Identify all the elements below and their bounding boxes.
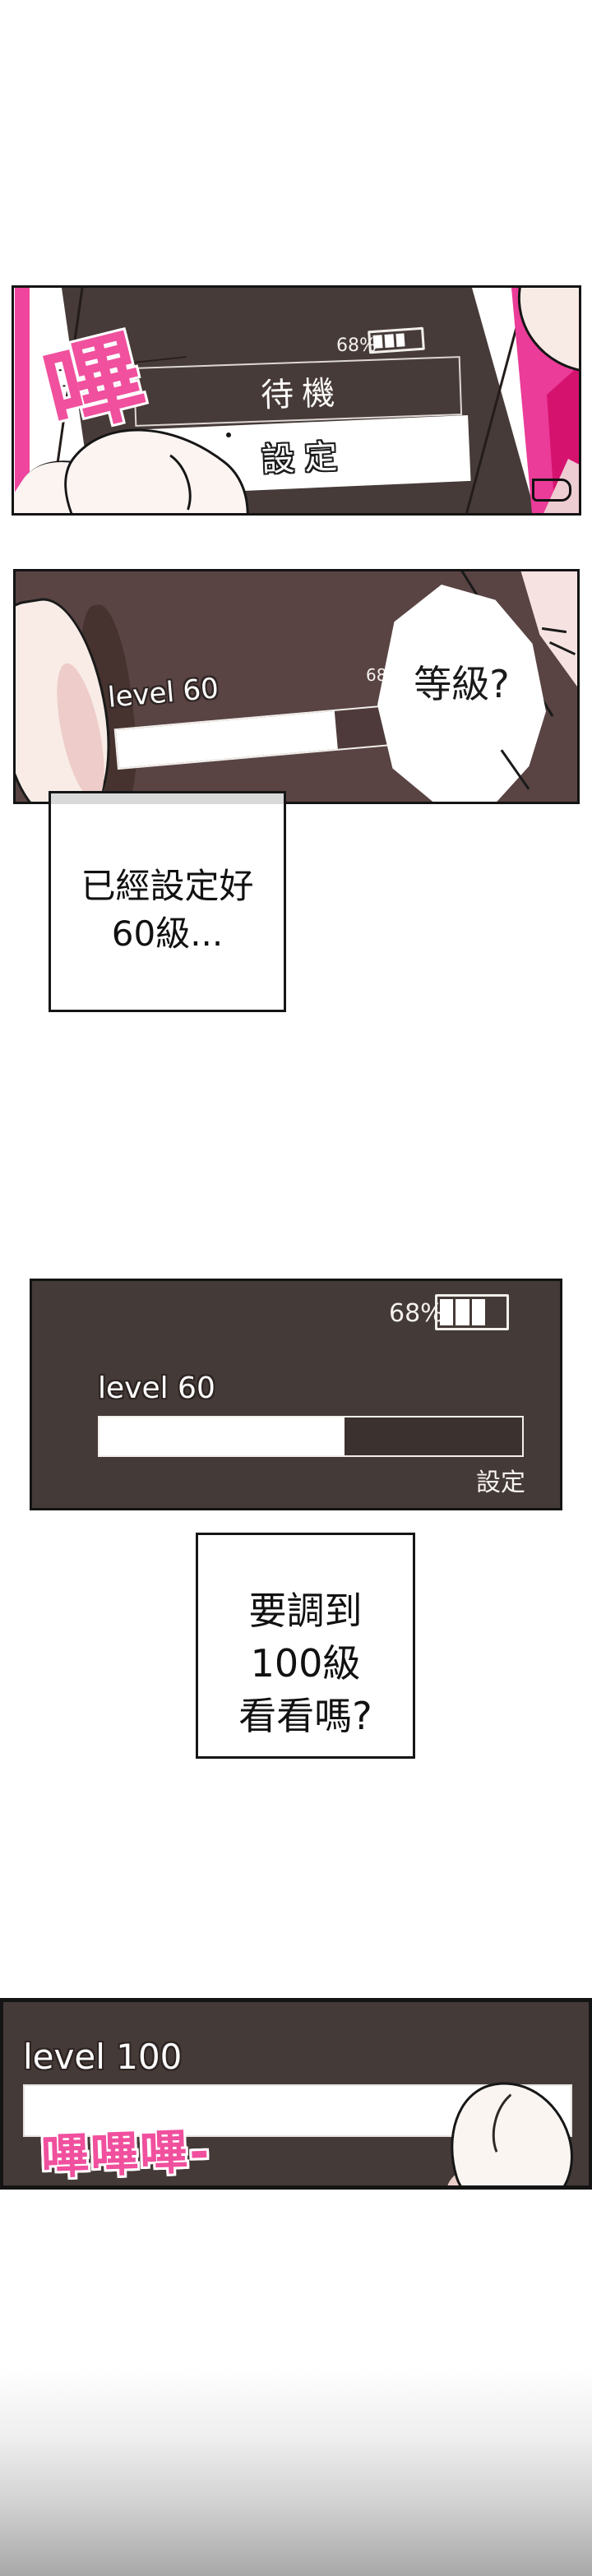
comic-page: 68% 待機 設定 嗶 level 60 [0,0,592,2576]
battery-cell [395,333,405,347]
speech-bubble-text: 等級? [414,654,509,709]
standby-menu-item: 待機 [133,356,462,427]
caption-line: 要調到 [198,1584,413,1637]
phone-corner-hook [532,479,571,502]
caption-overlap-strip [51,793,284,804]
battery-cell [373,335,383,349]
panel-phone-menu: 68% 待機 設定 嗶 [12,285,581,516]
caption-line: 60級... [51,910,284,958]
battery-cell [440,1299,453,1325]
caption-text: 已經設定好 60級... [51,793,284,958]
level-progress-fill [99,1417,345,1455]
battery-icon [435,1294,509,1330]
bottom-fade-gradient [0,2366,592,2576]
level-progress-fill [116,711,338,768]
panel-level-60-question: level 60 68% 等級? [13,569,580,804]
finger-dot [226,432,231,437]
sfx-beep-beep-beep: 嗶嗶嗶- [40,2112,212,2187]
battery-empty-cell [407,332,420,346]
caption-line: 看看嗎? [198,1690,413,1742]
battery-empty-cell [488,1299,504,1325]
battery-cell [456,1299,469,1325]
panel-level-60-screen: 68% level 60 設定 [30,1279,562,1510]
caption-text: 要調到 100級 看看嗎? [198,1535,413,1742]
caption-line: 100級 [198,1637,413,1690]
battery-cell [384,334,394,348]
caption-box-already-set: 已經設定好 60級... [49,791,286,1012]
level-progress-bar [98,1416,524,1457]
caption-line: 已經設定好 [51,863,284,910]
caption-box-try-100: 要調到 100級 看看嗎? [196,1533,415,1759]
battery-icon [368,327,425,354]
settings-label: 設定 [476,1462,525,1498]
standby-label: 待機 [252,366,344,417]
speech-bubble: 等級? [377,585,546,803]
settings-label: 設定 [251,429,348,481]
battery-cell [472,1299,485,1325]
level-label: level 100 [23,2037,182,2077]
panel-level-100: level 100 嗶嗶嗶- [0,1998,592,2190]
level-label: level 60 [98,1371,215,1405]
